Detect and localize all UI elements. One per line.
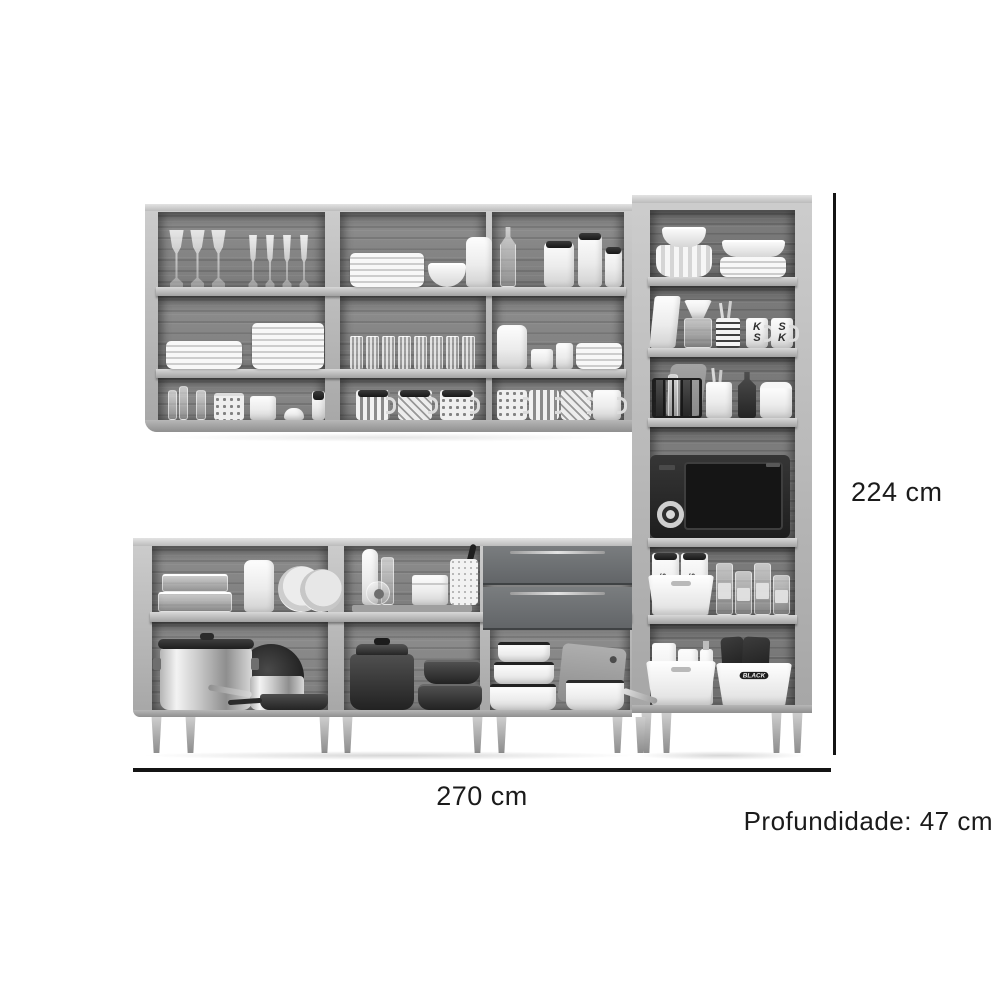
coffee-carafe	[684, 318, 712, 348]
cabinet-leg	[495, 717, 508, 753]
spice-bottle	[179, 386, 188, 420]
mug	[497, 390, 527, 420]
mug	[356, 390, 390, 420]
cutting-board	[649, 296, 680, 348]
mug-rim	[442, 390, 472, 397]
cabinet-leg	[150, 717, 163, 753]
cup	[531, 349, 553, 369]
canister	[605, 247, 622, 287]
letter-mug: KS	[746, 318, 768, 348]
tall-shelf-board	[648, 277, 797, 286]
storage-bin: BLACK	[716, 663, 792, 705]
pot-lid	[356, 644, 408, 655]
package-top	[683, 553, 707, 560]
mug-rim	[358, 390, 388, 397]
plate-stack	[720, 257, 786, 277]
fluted-bowl-stack	[656, 245, 712, 277]
tall-cabinet-top-edge	[632, 195, 812, 203]
microwave-door	[684, 462, 783, 530]
grinder	[312, 391, 325, 420]
pantry-jar	[754, 563, 771, 615]
letter-mug-text: KS	[751, 322, 763, 344]
wall-shelf-board	[156, 287, 626, 296]
base-cabinet-bottom	[133, 710, 632, 717]
pump-top	[703, 641, 709, 650]
cabinet-leg	[660, 713, 673, 753]
glass-container	[158, 592, 232, 612]
plate-stack	[166, 341, 242, 369]
tumbler-glass	[446, 336, 459, 369]
microwave-label	[659, 465, 675, 470]
tumbler-glass	[430, 336, 443, 369]
stacked-pot	[424, 660, 480, 684]
lid-knob	[200, 633, 214, 640]
depth-dimension-label: Profundidade: 47 cm	[744, 806, 993, 837]
utensil-crock	[450, 559, 478, 605]
tumbler-glass	[382, 336, 395, 369]
bin-label: BLACK	[740, 672, 769, 679]
cabinet-leg	[184, 717, 197, 753]
spice-bottle	[196, 390, 206, 420]
cabinet-leg	[791, 713, 804, 753]
round-jar	[366, 581, 390, 605]
white-saucepan	[566, 680, 624, 710]
wall-shelf-board	[156, 369, 626, 378]
width-dimension-line	[133, 768, 831, 772]
bin-handle	[671, 667, 691, 672]
white-pot	[498, 642, 550, 662]
mug	[440, 390, 474, 420]
butter-dish	[412, 575, 448, 605]
base-cabinet-countertop	[133, 538, 632, 546]
canister-lid	[579, 233, 600, 240]
tall-shelf-board	[648, 418, 797, 427]
white-pot	[490, 684, 556, 710]
microwave	[650, 455, 790, 538]
floor-shadow	[636, 751, 806, 760]
tumbler-glass	[462, 336, 475, 369]
drawer-handle	[510, 551, 605, 554]
pot-handle	[153, 658, 161, 670]
jar-label	[775, 590, 788, 602]
bin-handle	[671, 581, 691, 586]
wall-cabinet-shadow	[165, 433, 615, 442]
canister-lid	[546, 241, 572, 248]
tall-shelf-board	[648, 348, 797, 357]
grinder-top	[313, 391, 324, 400]
kitchen-set-dimension-image: KS SK PAS PAS SEA SALT BLACK	[0, 0, 1000, 1000]
storage-bin	[648, 575, 714, 615]
tumbler-glass	[414, 336, 427, 369]
lid-seam	[412, 583, 448, 585]
plate-stack	[252, 323, 324, 369]
spice-bottle	[168, 390, 177, 420]
jar-content	[374, 589, 384, 599]
canister-lid	[606, 247, 621, 254]
utensil-crock	[706, 382, 732, 418]
drawer-handle	[510, 592, 605, 595]
serving-tray	[352, 605, 472, 612]
jar-label	[718, 583, 731, 599]
cabinet-leg	[318, 717, 331, 753]
wall-cabinet-bottom	[145, 420, 632, 432]
height-dimension-line	[833, 193, 836, 755]
jar-label	[756, 583, 769, 599]
letter-mug-text: SK	[776, 322, 788, 344]
white-pot	[494, 662, 554, 684]
cabinet-leg	[611, 717, 624, 753]
cabinet-leg	[471, 717, 484, 753]
canister	[760, 382, 792, 418]
mug	[529, 390, 559, 420]
drawer	[483, 546, 632, 585]
letter-mug: SK	[771, 318, 793, 348]
width-dimension-label: 270 cm	[133, 781, 831, 812]
tall-shelf-board	[648, 615, 797, 624]
drawer	[483, 587, 632, 630]
dutch-oven	[350, 654, 414, 710]
pantry-jar	[716, 563, 733, 615]
cabinet-leg	[770, 713, 783, 753]
lid-knob	[374, 638, 390, 645]
tumbler-glass	[398, 336, 411, 369]
serving-bowl	[722, 240, 785, 257]
pantry-jar	[735, 571, 752, 615]
floor-shadow	[140, 751, 640, 760]
canister	[244, 560, 274, 612]
cup	[556, 343, 573, 369]
stacked-pot	[418, 684, 482, 710]
mug	[398, 390, 432, 420]
tall-shelf-board	[648, 538, 797, 547]
utensil-cup	[716, 318, 740, 348]
pitcher	[466, 237, 492, 287]
pot-handle	[251, 658, 259, 670]
pantry-jar	[773, 575, 790, 615]
storage-jar	[250, 396, 276, 420]
skillet	[260, 694, 328, 710]
glass-container	[162, 574, 228, 592]
wall-shelf-cell	[158, 212, 325, 287]
mug	[561, 390, 591, 420]
canister	[578, 233, 602, 287]
lid-knob	[284, 408, 304, 420]
tumbler-glass	[366, 336, 379, 369]
package-top	[654, 553, 678, 560]
storage-jar	[214, 393, 244, 420]
bowl-stack	[576, 343, 622, 369]
canister	[497, 325, 527, 369]
microwave-logo	[766, 463, 780, 467]
tall-cabinet-bottom	[632, 705, 812, 713]
board-hole	[609, 656, 617, 664]
canister	[544, 241, 574, 287]
pot-lid	[158, 639, 254, 649]
wire-basket	[652, 378, 702, 418]
mug-rim	[400, 390, 430, 397]
height-dimension-label: 224 cm	[851, 477, 943, 508]
jar-label	[737, 588, 750, 601]
wall-cabinet-top-edge	[145, 204, 632, 211]
microwave-dial	[657, 501, 684, 528]
plate-stack	[350, 253, 424, 287]
tumbler-glass	[350, 336, 363, 369]
cabinet-leg	[341, 717, 354, 753]
mug	[593, 390, 621, 420]
